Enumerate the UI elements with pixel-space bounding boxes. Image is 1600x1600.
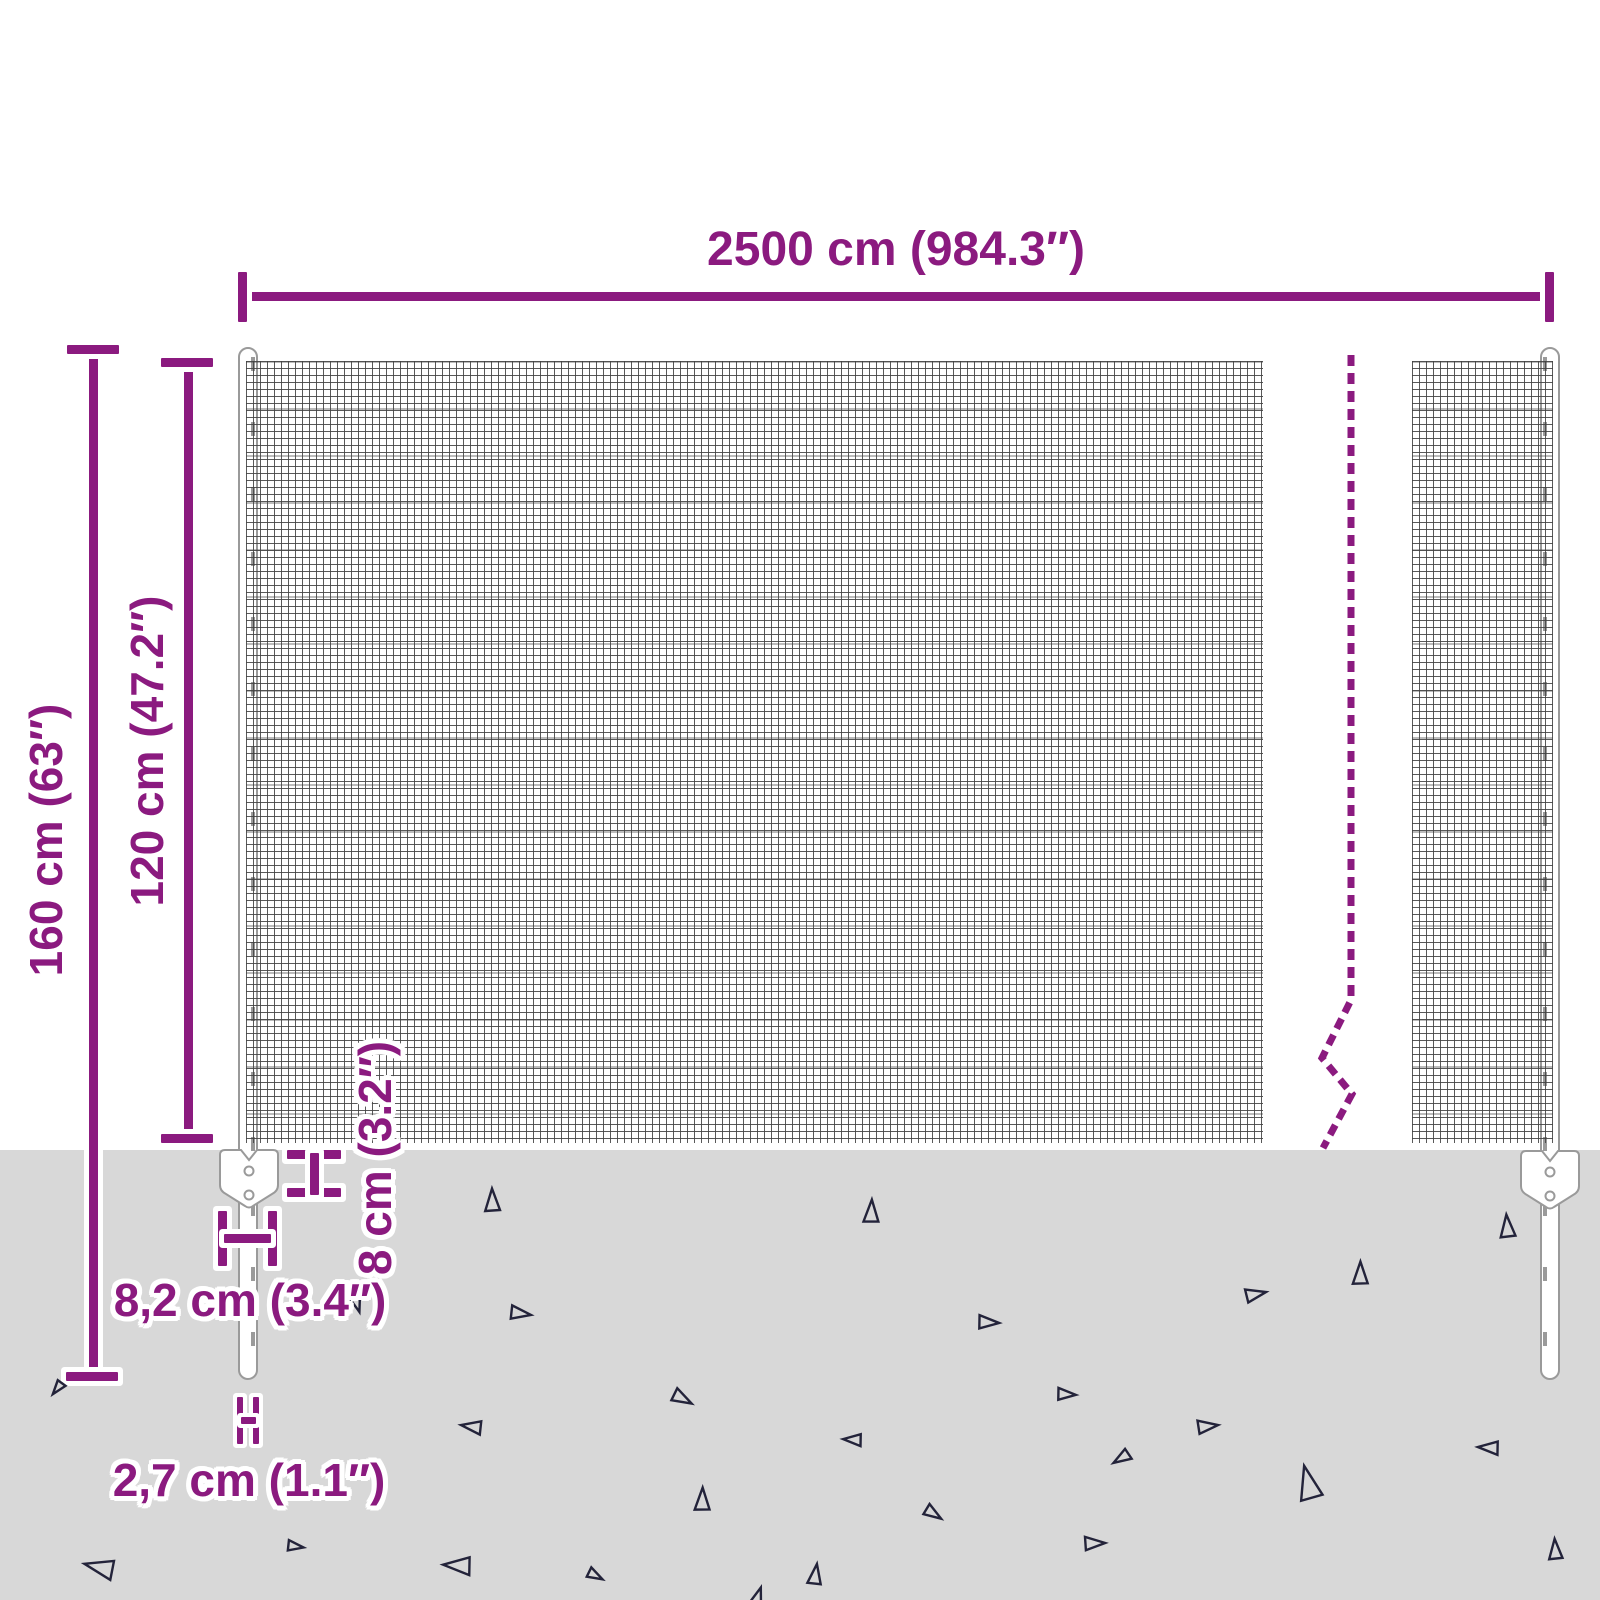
screw-hole <box>1546 1192 1555 1201</box>
dim-anchor-plate-width-label: 8,2 cm (3.4″) <box>114 1273 387 1327</box>
dimension-line <box>241 1417 256 1424</box>
fence-dimension-diagram: 2500 cm (984.3″) 160 cm (63″) 120 cm (47… <box>0 0 1600 1600</box>
screw-hole <box>1546 1168 1555 1177</box>
dimension-tick <box>66 1372 118 1381</box>
anchor-plate-right <box>1520 1150 1580 1212</box>
dim-fence-height-label: 120 cm (47.2″) <box>120 596 174 907</box>
break-line <box>1290 340 1390 1170</box>
screw-hole <box>245 1191 254 1200</box>
dimension-tick <box>1545 272 1554 322</box>
dimension-tick <box>238 272 247 322</box>
wire-mesh-panel-continued <box>1412 361 1553 1143</box>
dimension-line <box>310 1153 319 1195</box>
dimension-line <box>184 358 193 1143</box>
dimension-tick <box>161 358 213 367</box>
dimension-line <box>224 1234 271 1243</box>
dim-post-diameter-label: 2,7 cm (1.1″) <box>113 1453 386 1507</box>
dim-total-width-label: 2500 cm (984.3″) <box>707 222 1085 277</box>
dim-ground-gap-label: 8 cm (3.2″) <box>348 1041 402 1275</box>
dimension-tick <box>67 345 119 354</box>
wire-mesh-panel <box>246 361 1263 1143</box>
screw-hole <box>245 1167 254 1176</box>
dimension-line <box>242 292 1550 301</box>
dim-total-height-label: 160 cm (63″) <box>19 704 73 977</box>
anchor-plate-left <box>219 1149 279 1211</box>
dimension-line <box>89 345 98 1381</box>
dimension-tick <box>161 1134 213 1143</box>
